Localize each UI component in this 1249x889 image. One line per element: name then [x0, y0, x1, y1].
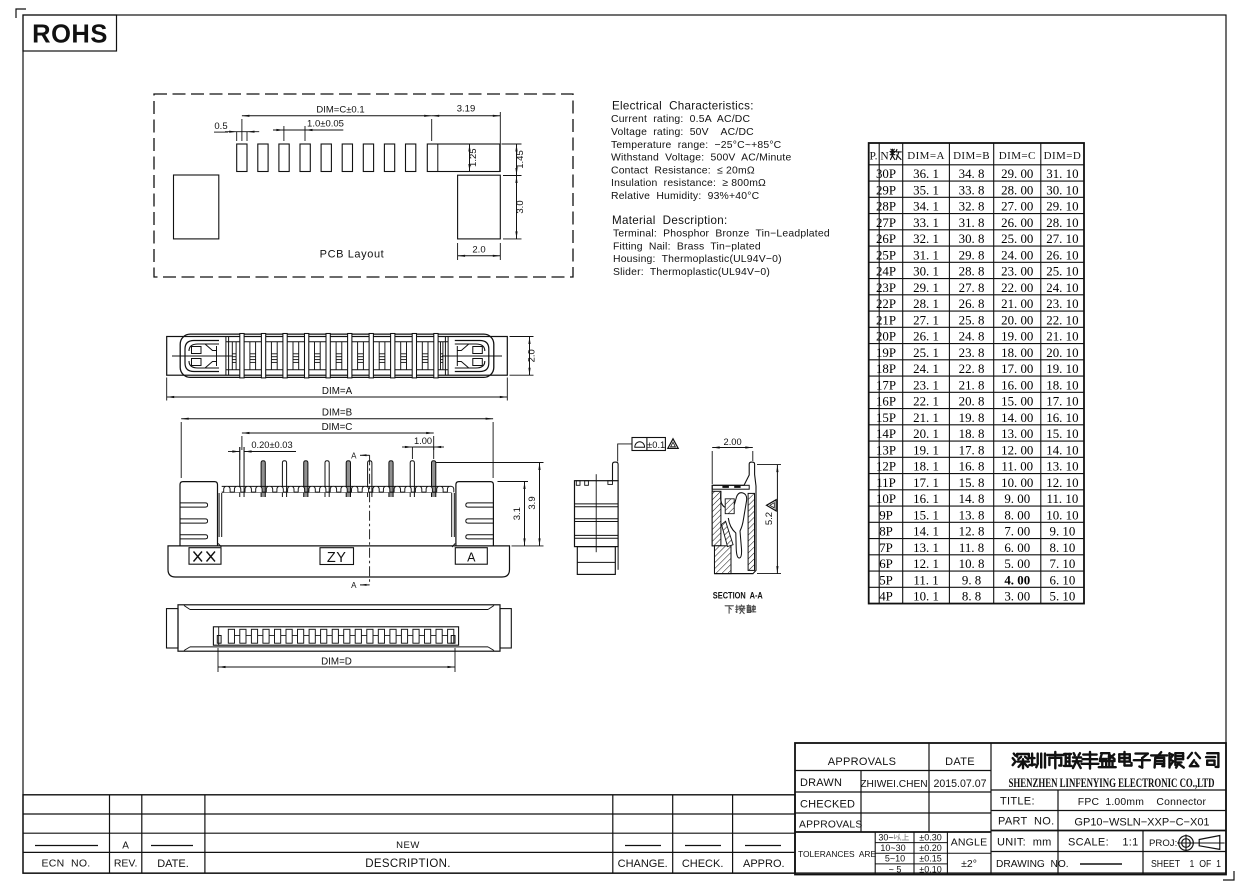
svg-text:19. 8: 19. 8 [959, 411, 985, 425]
svg-text:ZHIWEI.CHEN: ZHIWEI.CHEN [860, 779, 927, 790]
svg-text:29. 8: 29. 8 [959, 248, 985, 262]
svg-text:20. 00: 20. 00 [1001, 313, 1033, 327]
svg-text:19. 10: 19. 10 [1046, 362, 1078, 376]
svg-text:A: A [351, 581, 357, 590]
svg-text:DRAWN: DRAWN [800, 777, 842, 789]
svg-text:17. 8: 17. 8 [959, 443, 985, 457]
svg-text:6. 10: 6. 10 [1050, 573, 1076, 587]
svg-text:SHENZHEN LINFENYING ELECTRONIC: SHENZHEN LINFENYING ELECTRONIC CO.,LTD [1009, 775, 1215, 790]
svg-text:10. 00: 10. 00 [1001, 476, 1033, 490]
svg-text:Fitting Nail: Brass Tin−pla: Fitting Nail: Brass Tin−plated [613, 241, 761, 252]
svg-text:33. 8: 33. 8 [959, 184, 985, 198]
svg-text:FPC 1.00mm Connector: FPC 1.00mm Connector [1078, 797, 1207, 808]
svg-text:14. 00: 14. 00 [1001, 411, 1033, 425]
svg-text:21. 1: 21. 1 [913, 411, 939, 425]
svg-text:10. 8: 10. 8 [959, 557, 985, 571]
svg-text:DIM=D: DIM=D [321, 656, 352, 667]
svg-text:±0.10: ±0.10 [919, 864, 941, 874]
svg-text:30~: 30~ [878, 833, 893, 843]
svg-text:Terminal: Phosphor Bronze T: Terminal: Phosphor Bronze Tin−Leadplated [613, 229, 830, 240]
svg-text:23. 10: 23. 10 [1046, 297, 1078, 311]
svg-text:APPRO.: APPRO. [743, 858, 785, 870]
svg-text:18P: 18P [876, 362, 896, 376]
svg-text:5~10: 5~10 [885, 854, 905, 864]
svg-text:9. 00: 9. 00 [1004, 492, 1030, 506]
svg-text:REV.: REV. [114, 858, 138, 870]
svg-text:26. 10: 26. 10 [1046, 248, 1078, 262]
svg-text:DIM=C: DIM=C [322, 422, 353, 433]
svg-text:A: A [467, 550, 476, 564]
svg-text:26. 8: 26. 8 [959, 297, 985, 311]
svg-text:31. 8: 31. 8 [959, 216, 985, 230]
svg-text:32. 1: 32. 1 [913, 232, 939, 246]
svg-text:Housing: Thermoplastic(UL94V−: Housing: Thermoplastic(UL94V−0) [613, 254, 782, 265]
svg-text:5. 10: 5. 10 [1050, 590, 1076, 604]
svg-text:11. 8: 11. 8 [959, 541, 984, 555]
svg-text:1.25: 1.25 [468, 148, 479, 167]
svg-text:27. 1: 27. 1 [913, 313, 939, 327]
svg-text:4. 00: 4. 00 [1004, 573, 1030, 587]
svg-text:APPROVALS: APPROVALS [799, 820, 862, 831]
svg-text:14. 8: 14. 8 [959, 492, 985, 506]
svg-text:22. 10: 22. 10 [1046, 313, 1078, 327]
svg-text:19. 00: 19. 00 [1001, 330, 1033, 344]
svg-text:1.45: 1.45 [515, 150, 526, 169]
svg-text:5P: 5P [879, 573, 893, 587]
svg-text:30. 10: 30. 10 [1046, 184, 1078, 198]
svg-text:16P: 16P [876, 395, 896, 409]
svg-text:1.0±0.05: 1.0±0.05 [307, 119, 344, 130]
svg-text:10P: 10P [876, 492, 896, 506]
svg-text:±0.1: ±0.1 [647, 440, 665, 450]
svg-text:ECN NO.: ECN NO. [41, 858, 90, 870]
svg-text:26. 1: 26. 1 [913, 330, 939, 344]
svg-text:30. 1: 30. 1 [913, 265, 939, 279]
svg-text:4P: 4P [879, 590, 893, 604]
svg-text:DIM=B: DIM=B [322, 407, 353, 418]
svg-text:13. 1: 13. 1 [913, 541, 939, 555]
svg-text:14. 1: 14. 1 [913, 525, 939, 539]
svg-text:25. 1: 25. 1 [913, 346, 939, 360]
svg-text:24. 8: 24. 8 [959, 330, 985, 344]
svg-text:Slider: Thermoplastic(UL94V−0: Slider: Thermoplastic(UL94V−0) [613, 267, 770, 278]
svg-text:24. 1: 24. 1 [913, 362, 939, 376]
svg-text:DIM=A: DIM=A [322, 386, 353, 397]
svg-text:CHECKED: CHECKED [800, 799, 855, 811]
svg-text:NEW: NEW [396, 840, 420, 851]
svg-text:3.19: 3.19 [457, 104, 476, 115]
svg-text:27. 00: 27. 00 [1001, 200, 1033, 214]
svg-text:21P: 21P [876, 313, 896, 327]
svg-text:27P: 27P [876, 216, 896, 230]
svg-text:7. 10: 7. 10 [1050, 557, 1076, 571]
svg-text:5.2: 5.2 [764, 512, 775, 525]
svg-text:23. 00: 23. 00 [1001, 265, 1033, 279]
svg-text:24. 10: 24. 10 [1046, 281, 1078, 295]
svg-text:32. 8: 32. 8 [959, 200, 985, 214]
svg-text:36. 1: 36. 1 [913, 167, 939, 181]
svg-text:21. 00: 21. 00 [1001, 297, 1033, 311]
svg-text:19P: 19P [876, 346, 896, 360]
svg-text:PCB Layout: PCB Layout [320, 249, 385, 261]
svg-text:29. 00: 29. 00 [1001, 167, 1033, 181]
svg-text:17. 00: 17. 00 [1001, 362, 1033, 376]
svg-text:±0.30: ±0.30 [919, 833, 941, 843]
svg-text:A: A [351, 451, 357, 460]
svg-text:±0.20: ±0.20 [919, 843, 941, 853]
svg-text:12. 10: 12. 10 [1046, 476, 1078, 490]
svg-text:SECTION A-A: SECTION A-A [713, 590, 763, 601]
svg-text:11. 00: 11. 00 [1001, 460, 1033, 474]
svg-text:33. 1: 33. 1 [913, 216, 939, 230]
svg-text:13P: 13P [876, 443, 896, 457]
svg-text:23. 1: 23. 1 [913, 378, 939, 392]
svg-text:11. 10: 11. 10 [1047, 492, 1079, 506]
svg-text:N: N [880, 151, 889, 163]
svg-text:9P: 9P [879, 509, 893, 523]
svg-text:16. 1: 16. 1 [913, 492, 939, 506]
svg-text:0.20±0.03: 0.20±0.03 [251, 440, 292, 450]
svg-text:29P: 29P [876, 184, 896, 198]
svg-text:12. 00: 12. 00 [1001, 443, 1033, 457]
svg-text:SHEET 1 OF 1: SHEET 1 OF 1 [1151, 859, 1221, 870]
svg-text:DIM=A: DIM=A [907, 150, 945, 162]
svg-text:3.1: 3.1 [512, 507, 523, 520]
svg-text:12. 1: 12. 1 [913, 557, 939, 571]
svg-text:22P: 22P [876, 297, 896, 311]
svg-text:24P: 24P [876, 265, 896, 279]
svg-text:CHECK.: CHECK. [682, 858, 724, 870]
svg-text:Withstand Voltage: 500V AC/: Withstand Voltage: 500V AC/Minute [611, 153, 791, 164]
svg-text:16. 00: 16. 00 [1001, 378, 1033, 392]
svg-text:PART NO.: PART NO. [998, 816, 1055, 828]
svg-text:28P: 28P [876, 200, 896, 214]
svg-text:9. 10: 9. 10 [1050, 525, 1076, 539]
svg-text:A: A [122, 841, 129, 852]
svg-text:22. 8: 22. 8 [959, 362, 985, 376]
svg-text:20. 8: 20. 8 [959, 395, 985, 409]
svg-text:Relative Humidity: 93%+40°C: Relative Humidity: 93%+40°C [611, 191, 760, 202]
svg-text:16. 8: 16. 8 [959, 460, 985, 474]
svg-text:22. 00: 22. 00 [1001, 281, 1033, 295]
svg-text:UNIT: mm: UNIT: mm [997, 837, 1052, 849]
svg-text:16. 10: 16. 10 [1046, 411, 1078, 425]
svg-text:18. 1: 18. 1 [913, 460, 939, 474]
svg-text:DRAWING NO.: DRAWING NO. [996, 859, 1069, 870]
svg-text:15. 8: 15. 8 [959, 476, 985, 490]
svg-text:7P: 7P [879, 541, 893, 555]
svg-text:ANGLE: ANGLE [951, 837, 988, 849]
svg-text:8. 00: 8. 00 [1004, 509, 1030, 523]
svg-text:30. 8: 30. 8 [959, 232, 985, 246]
svg-text:Temperature range: −25°C~+85: Temperature range: −25°C~+85°C [611, 140, 782, 151]
svg-text:31. 10: 31. 10 [1046, 167, 1078, 181]
svg-text:25. 00: 25. 00 [1001, 232, 1033, 246]
svg-text:TOLERANCES ARE: TOLERANCES ARE [798, 849, 876, 859]
svg-text:15. 1: 15. 1 [913, 509, 939, 523]
svg-text:14. 10: 14. 10 [1046, 443, 1078, 457]
svg-text:22. 1: 22. 1 [913, 395, 939, 409]
svg-text:25P: 25P [876, 248, 896, 262]
svg-text:15. 00: 15. 00 [1001, 395, 1033, 409]
svg-text:7. 00: 7. 00 [1004, 525, 1030, 539]
svg-text:23P: 23P [876, 281, 896, 295]
svg-text:12. 8: 12. 8 [959, 525, 985, 539]
svg-text:2.0: 2.0 [527, 349, 538, 362]
svg-text:13. 10: 13. 10 [1046, 460, 1078, 474]
svg-text:SCALE: 1:1: SCALE: 1:1 [1068, 837, 1139, 849]
svg-text:30P: 30P [876, 167, 896, 181]
svg-text:ZY: ZY [327, 550, 347, 566]
svg-text:24. 00: 24. 00 [1001, 248, 1033, 262]
svg-text:20P: 20P [876, 330, 896, 344]
svg-text:18. 00: 18. 00 [1001, 346, 1033, 360]
svg-text:27. 10: 27. 10 [1046, 232, 1078, 246]
svg-text:11P: 11P [876, 476, 896, 490]
svg-text:20. 10: 20. 10 [1046, 346, 1078, 360]
svg-text:18. 8: 18. 8 [959, 427, 985, 441]
svg-text:19. 1: 19. 1 [913, 443, 939, 457]
svg-text:Voltage rating: 50V AC/DC: Voltage rating: 50V AC/DC [611, 127, 754, 138]
svg-text:GP10−WSLN−XXP−C−X01: GP10−WSLN−XXP−C−X01 [1074, 817, 1209, 829]
svg-text:CHANGE.: CHANGE. [618, 858, 668, 870]
svg-text:Material Description:: Material Description: [612, 214, 728, 227]
svg-text:TITLE:: TITLE: [1000, 796, 1035, 808]
svg-text:8. 10: 8. 10 [1050, 541, 1076, 555]
svg-text:28. 10: 28. 10 [1046, 216, 1078, 230]
svg-text:21. 10: 21. 10 [1046, 330, 1078, 344]
svg-text:13. 8: 13. 8 [959, 509, 985, 523]
svg-text:P.: P. [870, 151, 878, 163]
svg-text:2.0: 2.0 [472, 244, 485, 255]
svg-text:17. 10: 17. 10 [1046, 395, 1078, 409]
svg-text:8P: 8P [879, 525, 893, 539]
svg-text:21. 8: 21. 8 [959, 378, 985, 392]
svg-text:29. 10: 29. 10 [1046, 200, 1078, 214]
svg-text:DIM=D: DIM=D [1044, 150, 1082, 162]
svg-text:23. 8: 23. 8 [959, 346, 985, 360]
svg-text:DIM=C±0.1: DIM=C±0.1 [316, 105, 364, 116]
svg-text:6. 00: 6. 00 [1004, 541, 1030, 555]
svg-text:Contact Resistance: ≤ 20mΩ: Contact Resistance: ≤ 20mΩ [611, 165, 755, 176]
svg-text:10~30: 10~30 [880, 843, 905, 853]
svg-text:15. 10: 15. 10 [1046, 427, 1078, 441]
svg-text:10. 10: 10. 10 [1046, 509, 1078, 523]
svg-text:11. 1: 11. 1 [913, 573, 938, 587]
svg-text:DIM=B: DIM=B [953, 150, 990, 162]
svg-text:DATE.: DATE. [157, 858, 189, 870]
svg-text:9. 8: 9. 8 [962, 573, 981, 587]
svg-text:25. 10: 25. 10 [1046, 265, 1078, 279]
svg-text:DIM=C: DIM=C [999, 150, 1036, 162]
svg-text:~ 5: ~ 5 [889, 864, 902, 874]
svg-text:3. 00: 3. 00 [1004, 590, 1030, 604]
svg-text:5. 00: 5. 00 [1004, 557, 1030, 571]
svg-text:±2°: ±2° [961, 858, 977, 870]
svg-text:34. 1: 34. 1 [913, 200, 939, 214]
svg-text:28. 8: 28. 8 [959, 265, 985, 279]
svg-text:15P: 15P [876, 411, 896, 425]
svg-text:26P: 26P [876, 232, 896, 246]
svg-text:ROHS: ROHS [32, 21, 108, 49]
svg-text:2.00: 2.00 [724, 437, 742, 447]
svg-text:28. 1: 28. 1 [913, 297, 939, 311]
svg-text:17P: 17P [876, 378, 896, 392]
svg-text:DESCRIPTION.: DESCRIPTION. [365, 858, 450, 870]
svg-text:±0.15: ±0.15 [919, 854, 941, 864]
svg-text:3.0: 3.0 [515, 200, 526, 213]
svg-text:28. 00: 28. 00 [1001, 184, 1033, 198]
svg-text:PROJ:: PROJ: [1149, 838, 1177, 849]
svg-text:14P: 14P [876, 427, 896, 441]
svg-text:Electrical Characteristics:: Electrical Characteristics: [612, 99, 754, 112]
svg-text:APPROVALS: APPROVALS [828, 756, 897, 768]
svg-text:27. 8: 27. 8 [959, 281, 985, 295]
svg-text:20. 1: 20. 1 [913, 427, 939, 441]
svg-text:12P: 12P [876, 460, 896, 474]
svg-text:6P: 6P [879, 557, 893, 571]
svg-text:26. 00: 26. 00 [1001, 216, 1033, 230]
svg-text:35. 1: 35. 1 [913, 184, 939, 198]
svg-text:34. 8: 34. 8 [959, 167, 985, 181]
svg-text:DATE: DATE [945, 756, 975, 768]
svg-text:2015.07.07: 2015.07.07 [933, 778, 986, 790]
svg-text:31. 1: 31. 1 [913, 248, 939, 262]
svg-text:0.5: 0.5 [214, 121, 227, 132]
svg-text:25. 8: 25. 8 [959, 313, 985, 327]
svg-text:8. 8: 8. 8 [962, 590, 981, 604]
svg-text:18. 10: 18. 10 [1046, 378, 1078, 392]
svg-text:10. 1: 10. 1 [913, 590, 939, 604]
svg-text:29. 1: 29. 1 [913, 281, 939, 295]
svg-text:Insulation resistance: ≥ 800: Insulation resistance: ≥ 800mΩ [611, 178, 766, 189]
svg-text:13. 00: 13. 00 [1001, 427, 1033, 441]
svg-text:Current rating: 0.5A AC/DC: Current rating: 0.5A AC/DC [611, 114, 750, 125]
svg-text:3.9: 3.9 [527, 496, 538, 509]
svg-text:1.00: 1.00 [414, 436, 432, 446]
svg-text:17. 1: 17. 1 [913, 476, 939, 490]
